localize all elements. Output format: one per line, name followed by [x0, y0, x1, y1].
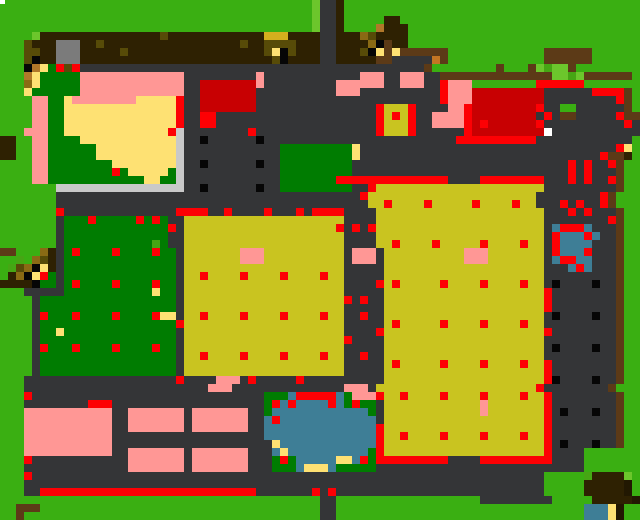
farm-map-canvas	[0, 0, 640, 520]
game-map[interactable]	[0, 0, 640, 520]
